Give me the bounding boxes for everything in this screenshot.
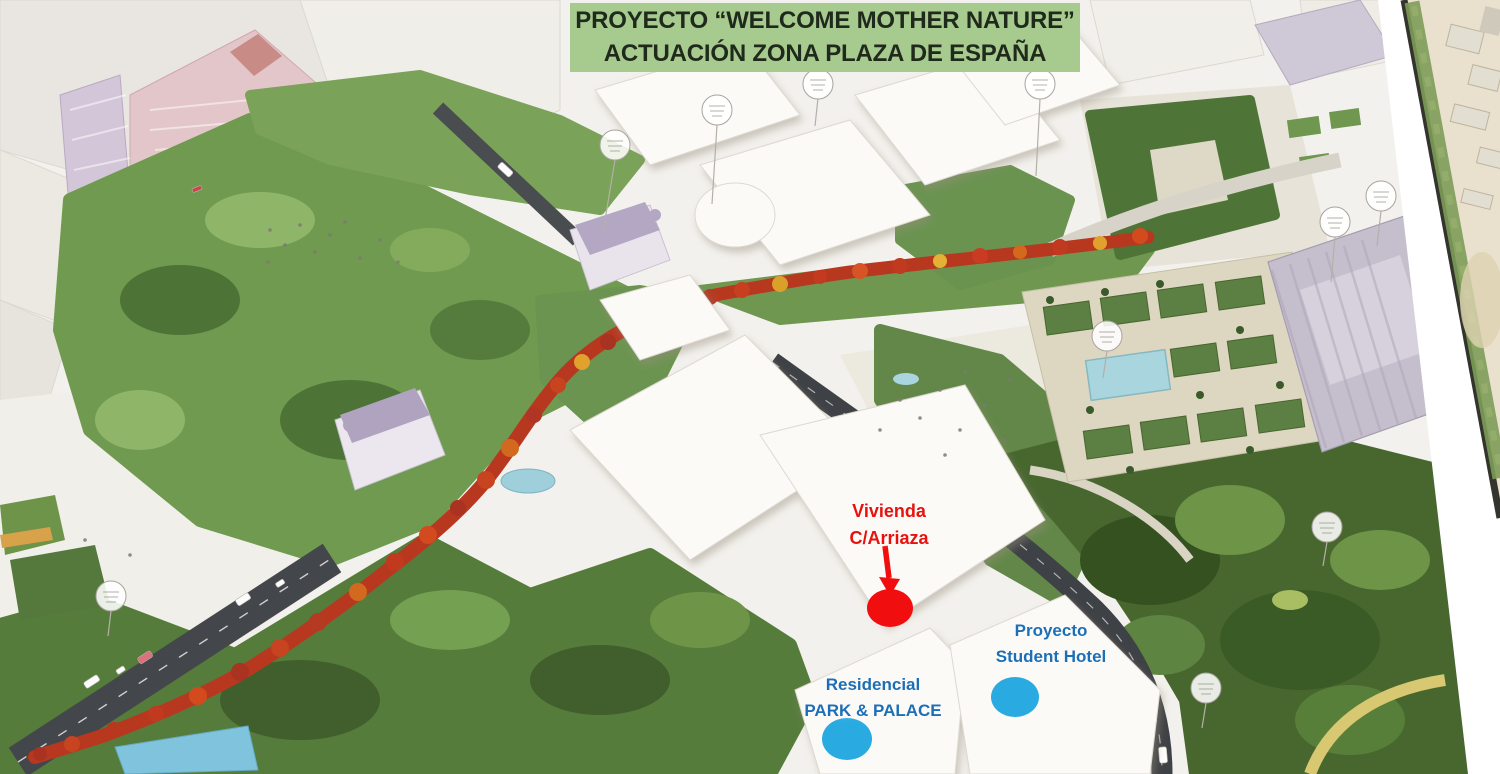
callout-circle [1191,673,1221,703]
title-line-1: PROYECTO “WELCOME MOTHER NATURE” [570,5,1080,38]
park-palace-marker [822,718,872,760]
park-palace-label: Residencial PARK & PALACE [773,672,973,723]
callout-circle [1312,512,1342,542]
callout-circle [96,581,126,611]
student-hotel-marker [991,677,1039,717]
callout-circle [702,95,732,125]
map-canvas: PROYECTO “WELCOME MOTHER NATURE” ACTUACI… [0,0,1500,774]
park-palace-label-line-1: Residencial [773,672,973,698]
vivienda-marker [867,589,913,627]
title-line-2: ACTUACIÓN ZONA PLAZA DE ESPAÑA [570,38,1080,71]
callout-circle [1320,207,1350,237]
park-palace-label-line-2: PARK & PALACE [773,698,973,724]
student-hotel-label-line-1: Proyecto [953,618,1149,644]
vivienda-arriaza-label: Vivienda C/Arriaza [803,498,975,552]
callout-circle [600,130,630,160]
aerial-rendering [0,0,1500,774]
student-hotel-label: Proyecto Student Hotel [953,618,1149,671]
vivienda-label-line-1: Vivienda [803,498,975,525]
callout-circle [1092,321,1122,351]
vivienda-label-line-2: C/Arriaza [803,525,975,552]
round-building [695,183,775,247]
callout-circle [1025,69,1055,99]
plaza-espana-pond [501,469,555,493]
callout-circle [1366,181,1396,211]
callout-circle [803,69,833,99]
student-hotel-label-line-2: Student Hotel [953,644,1149,670]
project-title-banner: PROYECTO “WELCOME MOTHER NATURE” ACTUACI… [570,3,1080,72]
